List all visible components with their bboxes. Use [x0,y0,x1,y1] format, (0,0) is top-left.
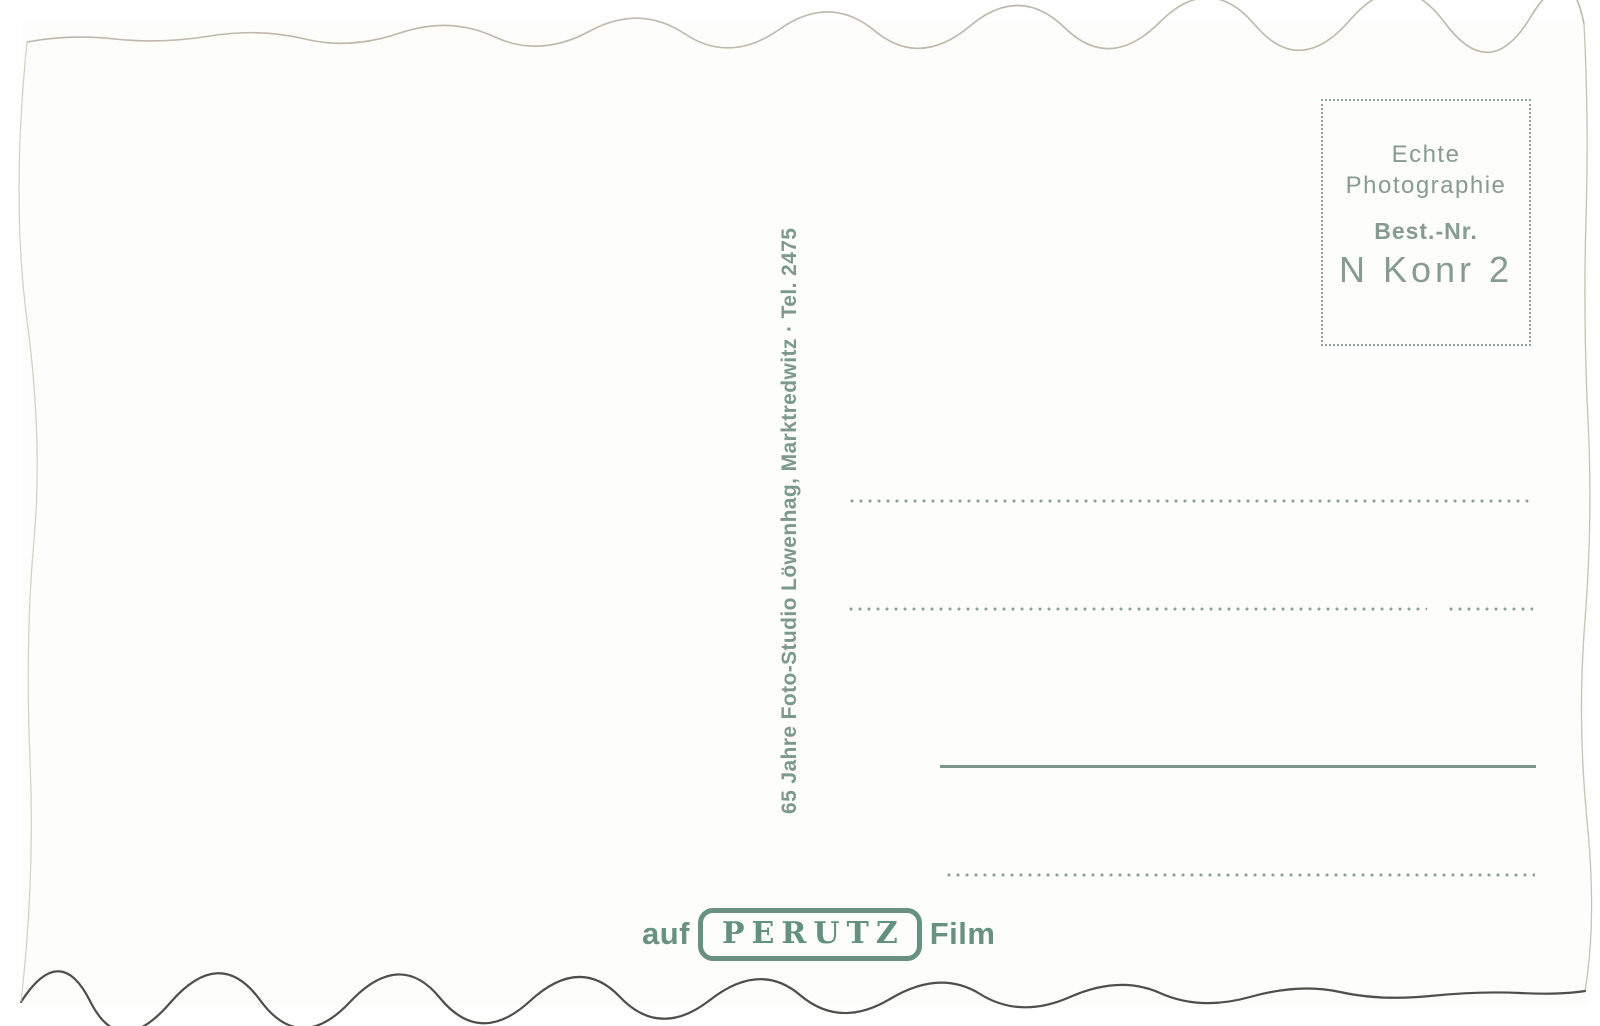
film-imprint: auf PERUTZ Film [642,906,995,962]
auf-label: auf [642,916,690,952]
film-label: Film [930,916,996,952]
studio-imprint-vertical-text: 65 Jahre Foto-Studio Löwenhag, Marktredw… [774,152,806,814]
echte-label: Echte [1392,139,1461,170]
perutz-badge: PERUTZ [698,908,922,961]
address-dotted-line-3 [947,873,1535,877]
address-dotted-line-2-left [849,607,1427,611]
order-info-box: Echte Photographie Best.-Nr. N Konr 2 [1321,99,1531,346]
order-number-label: Best.-Nr. [1374,217,1478,245]
address-solid-line [940,765,1536,768]
photographie-label: Photographie [1346,170,1507,201]
address-dotted-line-1 [850,499,1530,503]
perutz-brand-label: PERUTZ [722,916,905,951]
order-number-value: N Konr 2 [1339,249,1513,291]
address-dotted-line-2-right [1449,607,1533,611]
postcard-back: 65 Jahre Foto-Studio Löwenhag, Marktredw… [22,22,1588,1006]
